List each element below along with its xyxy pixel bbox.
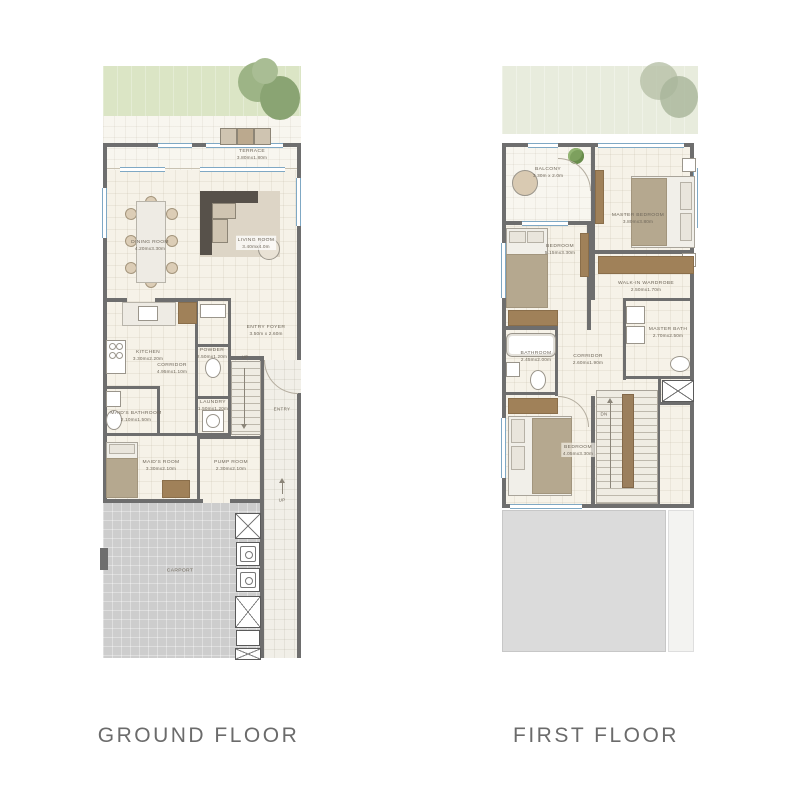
terrace-sofa	[237, 128, 254, 145]
vanity-sink	[626, 326, 645, 344]
pillow	[680, 182, 692, 210]
wall	[103, 433, 197, 436]
wall	[197, 436, 260, 439]
room-dims: 3.80mx1.80m	[237, 154, 267, 161]
wall	[103, 386, 157, 389]
wall	[230, 499, 264, 503]
room-label-master-bath: MASTER BATH 2.70mx2.50m	[649, 325, 687, 338]
room-label-kitchen: KITCHEN 3.30mx2.20m	[133, 348, 163, 361]
room-label-maids-bathroom: MAID'S BATHROOM 2.10mx1.50m	[110, 409, 161, 422]
entry-label: ENTRY	[274, 407, 291, 412]
tree-icon	[660, 76, 698, 118]
dresser	[162, 480, 190, 498]
room-name: KITCHEN	[133, 348, 163, 355]
room-name: LIVING ROOM	[238, 236, 275, 243]
room-name: MASTER BEDROOM	[612, 211, 664, 218]
stairs-down-label: DN	[600, 412, 607, 417]
pillow	[680, 213, 692, 241]
room-label-bedroom-2: BEDROOM 4.05mx3.30m	[561, 443, 594, 458]
room-dims: 2.30mx2.10m	[214, 465, 248, 472]
meter-box	[236, 568, 260, 592]
room-name: PUMP ROOM	[214, 458, 248, 465]
room-label-bedroom-1: BEDROOM 5.15mx3.30m	[545, 242, 575, 255]
room-dims: 3.40mx4.0m	[238, 243, 275, 250]
room-name: CORRIDOR	[157, 361, 187, 368]
stairs-direction-arrow	[244, 368, 245, 424]
window	[598, 143, 684, 148]
tv-unit	[595, 170, 604, 224]
roof-area	[502, 510, 666, 652]
stair-rail	[622, 394, 634, 488]
step-arrowhead	[279, 478, 285, 483]
burner	[109, 352, 116, 359]
roof-walkway	[668, 510, 694, 652]
terrace-sofa	[254, 128, 271, 145]
room-label-walk-in-wardrobe: WALK-IN WARDROBE 2.50mx1.70m	[618, 279, 674, 292]
wall	[502, 326, 558, 330]
room-dims: 2.50mx1.20m	[197, 353, 227, 360]
window	[510, 504, 582, 509]
washer-drum	[206, 414, 220, 428]
meter-box	[236, 542, 260, 566]
terrace-sofa	[220, 128, 237, 145]
toilet	[670, 356, 690, 372]
nightstand	[682, 158, 696, 172]
utility-box	[235, 513, 261, 539]
room-name: LAUNDRY	[198, 398, 228, 405]
room-dims: 4.20mx3.30m	[131, 245, 169, 252]
toilet	[205, 358, 221, 378]
kitchen-cabinet	[178, 302, 197, 324]
sofa	[200, 191, 212, 255]
dresser	[508, 398, 558, 414]
window	[528, 143, 558, 148]
room-name: CORRIDOR	[573, 352, 603, 359]
room-name: DINING ROOM	[131, 238, 169, 245]
room-label-corridor: CORRIDOR 4.95mx1.10m	[157, 361, 187, 374]
sofa-cushion	[212, 219, 228, 243]
powder-sink	[200, 304, 226, 318]
room-dims: 3.80mx3.80m	[612, 218, 664, 225]
room-name: ENTRY FOYER	[247, 323, 286, 330]
linen-closet	[662, 380, 694, 402]
wall	[502, 504, 510, 508]
meter-dial	[245, 577, 253, 585]
room-dims: 4.95mx1.10m	[157, 368, 187, 375]
room-label-living-room: LIVING ROOM 3.40mx4.0m	[236, 236, 276, 251]
room-name: CARPORT	[167, 567, 193, 574]
pillow	[511, 419, 525, 443]
wall	[197, 433, 200, 503]
sink	[106, 391, 121, 407]
stairs-arrowhead	[607, 398, 613, 403]
stairs-up-label: UP	[242, 355, 249, 360]
room-label-entry-foyer: ENTRY FOYER 3.50m x 2.60m	[247, 323, 286, 336]
room-label-maids-room: MAID'S ROOM 3.30mx2.10m	[142, 458, 179, 471]
room-name: TERRACE	[237, 147, 267, 154]
room-dims: 2.60mx1.90m	[573, 359, 603, 366]
pillow	[511, 446, 525, 470]
tree-icon	[252, 58, 278, 84]
room-label-corridor: CORRIDOR 2.60mx1.90m	[573, 352, 603, 365]
blanket	[106, 458, 138, 498]
room-label-bathroom: BATHROOM 2.45mx2.00m	[521, 349, 552, 362]
window	[102, 188, 107, 238]
toilet	[530, 370, 546, 390]
room-name: BALCONY	[533, 165, 563, 172]
room-name: BEDROOM	[545, 242, 575, 249]
stairs-direction-arrow	[610, 402, 611, 488]
wall	[502, 221, 522, 225]
room-dims: 3.50m x 2.60m	[247, 330, 286, 337]
room-label-carport: CARPORT	[167, 567, 193, 574]
room-name: POWDER	[197, 346, 227, 353]
room-label-laundry: LAUNDRY 1.50mx1.20m	[198, 398, 228, 411]
window	[158, 143, 192, 148]
wall	[297, 143, 301, 360]
room-name: BEDROOM	[563, 443, 593, 450]
wardrobe-shelf	[598, 256, 694, 274]
room-label-dining-room: DINING ROOM 4.20mx3.30m	[131, 238, 169, 251]
room-dims: 2.45mx2.00m	[521, 356, 552, 363]
window	[501, 418, 506, 478]
first-floor-title: FIRST FLOOR	[494, 724, 698, 754]
utility-box	[235, 648, 261, 660]
wall	[582, 504, 694, 508]
room-name: MAID'S BATHROOM	[110, 409, 161, 416]
dresser	[508, 310, 558, 326]
room-name: MASTER BATH	[649, 325, 687, 332]
entry-walkway	[264, 360, 301, 658]
dining-chair	[166, 262, 178, 274]
vanity-sink	[626, 306, 645, 324]
wall	[192, 143, 206, 147]
blanket	[506, 254, 548, 308]
wall	[502, 392, 558, 395]
step-arrow	[282, 482, 283, 494]
room-name: BATHROOM	[521, 349, 552, 356]
wall	[658, 376, 661, 404]
room-label-master-bedroom: MASTER BEDROOM 3.80mx3.80m	[612, 211, 664, 224]
window	[200, 167, 285, 172]
wall	[103, 143, 158, 147]
room-dims: 2.50mx1.70m	[618, 286, 674, 293]
burner	[109, 343, 116, 350]
wall	[195, 298, 231, 301]
pillow	[527, 231, 544, 243]
room-label-balcony: BALCONY 3.30m x 2.0m	[533, 165, 563, 178]
utility-cabinet	[236, 630, 260, 646]
wall	[297, 393, 301, 658]
window	[120, 167, 165, 172]
meter-dial	[245, 551, 253, 559]
room-dims: 2.70mx2.50m	[649, 332, 687, 339]
ground-floor-title: GROUND FLOOR	[96, 724, 301, 754]
room-label-pump-room: PUMP ROOM 2.30mx2.10m	[214, 458, 248, 471]
stairs-arrowhead	[241, 424, 247, 429]
sofa-cushion	[212, 203, 236, 219]
window	[296, 178, 301, 226]
kitchen-sink	[138, 306, 158, 321]
wall	[658, 402, 694, 405]
wall	[591, 250, 694, 254]
wall	[623, 298, 694, 301]
room-dims: 5.15mx3.30m	[545, 249, 575, 256]
first-floor-plan: BALCONY 3.30m x 2.0m MASTER BEDROOM 3.80…	[498, 58, 702, 658]
room-dims: 3.30m x 2.0m	[533, 172, 563, 179]
room-dims: 4.05mx3.30m	[563, 450, 593, 457]
tv-unit	[580, 233, 589, 277]
wall-stub	[100, 548, 108, 570]
wall	[103, 499, 203, 503]
room-name: WALK-IN WARDROBE	[618, 279, 674, 286]
room-name: MAID'S ROOM	[142, 458, 179, 465]
step-up-label: UP	[279, 498, 286, 503]
burner	[116, 343, 123, 350]
pillow	[509, 231, 526, 243]
room-label-powder: POWDER 2.50mx1.20m	[197, 346, 227, 359]
window	[522, 221, 568, 226]
dining-chair	[166, 208, 178, 220]
pillow	[109, 444, 135, 454]
room-dims: 1.50mx1.20m	[198, 405, 228, 412]
floorplan-sheet: TERRACE 3.80mx1.80m DINING ROOM 4.20mx3.…	[0, 0, 800, 800]
ground-floor-plan: TERRACE 3.80mx1.80m DINING ROOM 4.20mx3.…	[100, 58, 305, 660]
utility-box	[235, 596, 261, 628]
room-label-terrace: TERRACE 3.80mx1.80m	[237, 147, 267, 160]
sink	[506, 362, 520, 377]
room-dims: 3.30mx2.10m	[142, 465, 179, 472]
room-dims: 2.10mx1.50m	[110, 416, 161, 423]
burner	[116, 352, 123, 359]
